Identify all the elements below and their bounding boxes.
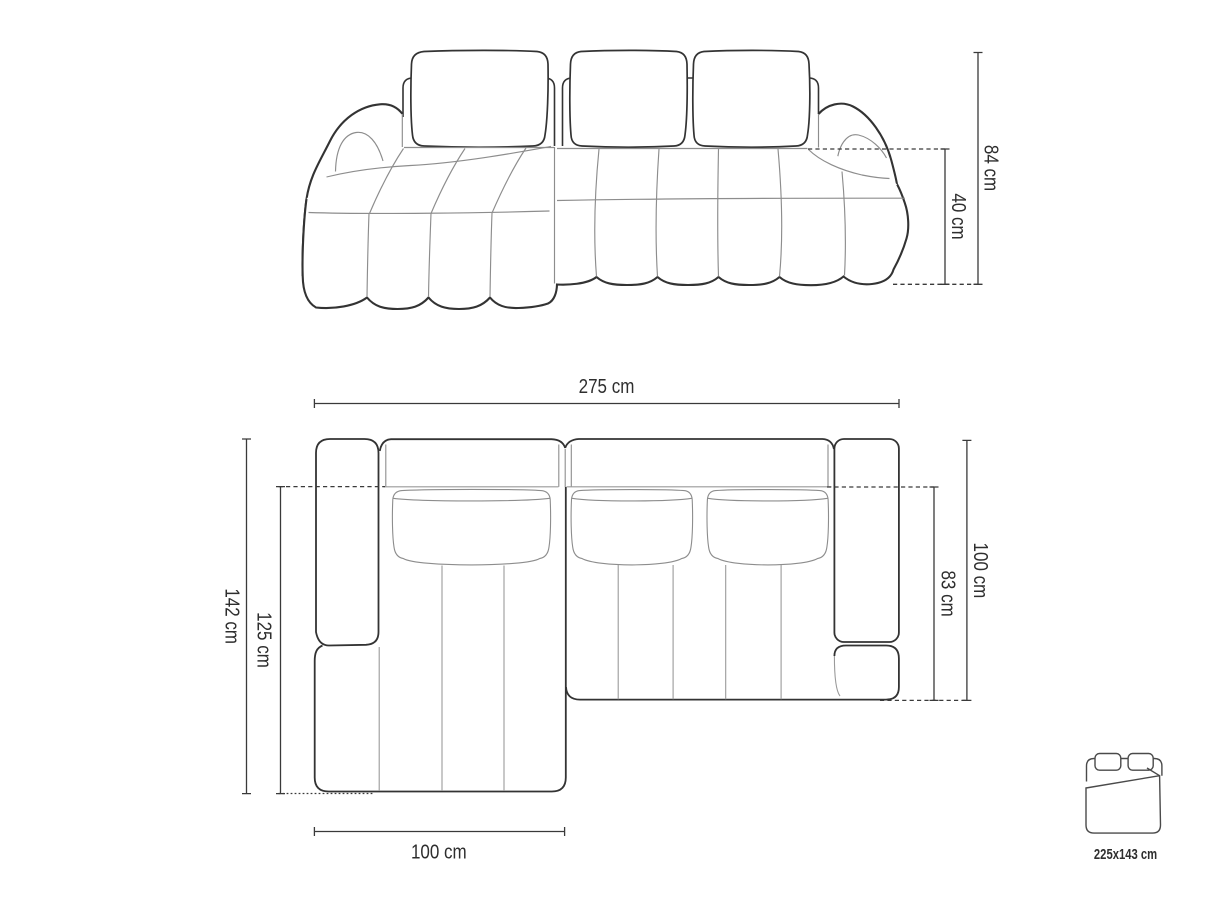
svg-text:40 cm: 40 cm [948, 193, 971, 239]
svg-text:225x143 cm: 225x143 cm [1094, 845, 1157, 862]
svg-text:100 cm: 100 cm [970, 543, 993, 599]
svg-text:125 cm: 125 cm [253, 612, 276, 668]
svg-text:84 cm: 84 cm [980, 145, 1003, 191]
svg-text:275 cm: 275 cm [579, 375, 635, 398]
svg-text:142 cm: 142 cm [221, 588, 244, 644]
svg-text:83 cm: 83 cm [937, 570, 960, 616]
svg-text:100 cm: 100 cm [411, 840, 467, 863]
